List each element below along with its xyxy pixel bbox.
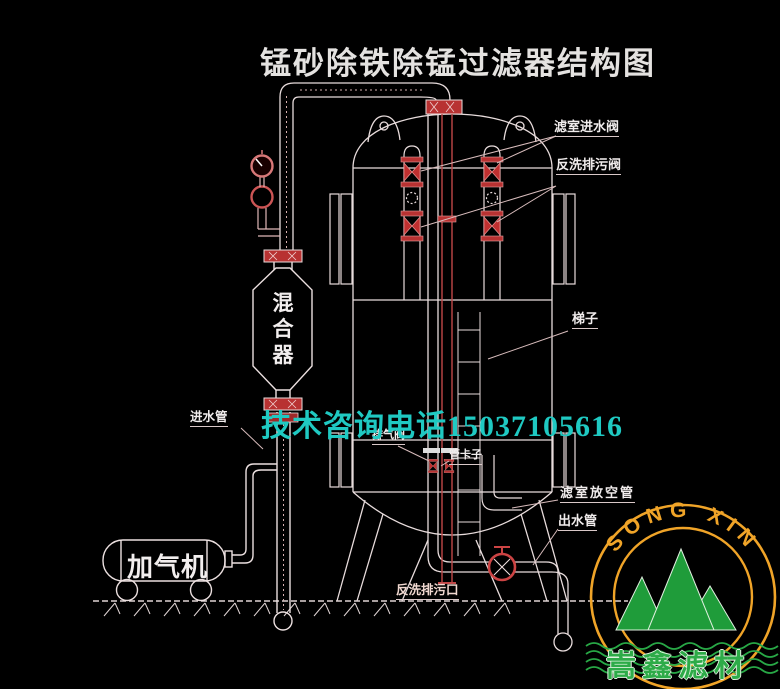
central-backwash-pipe bbox=[438, 114, 456, 583]
ground-line bbox=[93, 601, 628, 616]
vent-pipe bbox=[482, 455, 522, 510]
label-ladder: 梯子 bbox=[572, 312, 598, 329]
diagram-canvas: SONG XIN 锰砂除铁除锰过滤器结构图 滤室进水阀 反洗排污阀 梯子 滤室放… bbox=[0, 0, 780, 689]
filter-structure-drawing: SONG XIN bbox=[0, 0, 780, 689]
mountains-icon bbox=[616, 549, 736, 630]
label-inlet-pipe: 进水管 bbox=[190, 411, 228, 427]
label-filter-vent-pipe: 滤室放空管 bbox=[560, 486, 635, 503]
page-title: 锰砂除铁除锰过滤器结构图 bbox=[260, 38, 656, 83]
label-aerator: 加气机 bbox=[127, 547, 208, 584]
pressure-gauge-icon bbox=[252, 150, 281, 236]
tank-top-flange bbox=[426, 100, 462, 114]
consult-phone-watermark: 技术咨询电话15037105616 bbox=[261, 401, 623, 445]
feed-pipe bbox=[280, 83, 450, 250]
label-backwash-drain-valve: 反洗排污阀 bbox=[556, 158, 621, 175]
logo-company-name: 嵩鑫滤材 bbox=[606, 641, 750, 685]
outlet-valve-icon bbox=[489, 547, 515, 580]
label-pipe-clamp: 管卡子 bbox=[449, 450, 482, 465]
label-outlet-pipe: 出水管 bbox=[558, 514, 597, 531]
label-mixer: 混合器 bbox=[270, 291, 296, 369]
label-backwash-drain-outlet: 反洗排污口 bbox=[396, 584, 459, 600]
label-filter-inlet-valve: 滤室进水阀 bbox=[554, 120, 619, 137]
